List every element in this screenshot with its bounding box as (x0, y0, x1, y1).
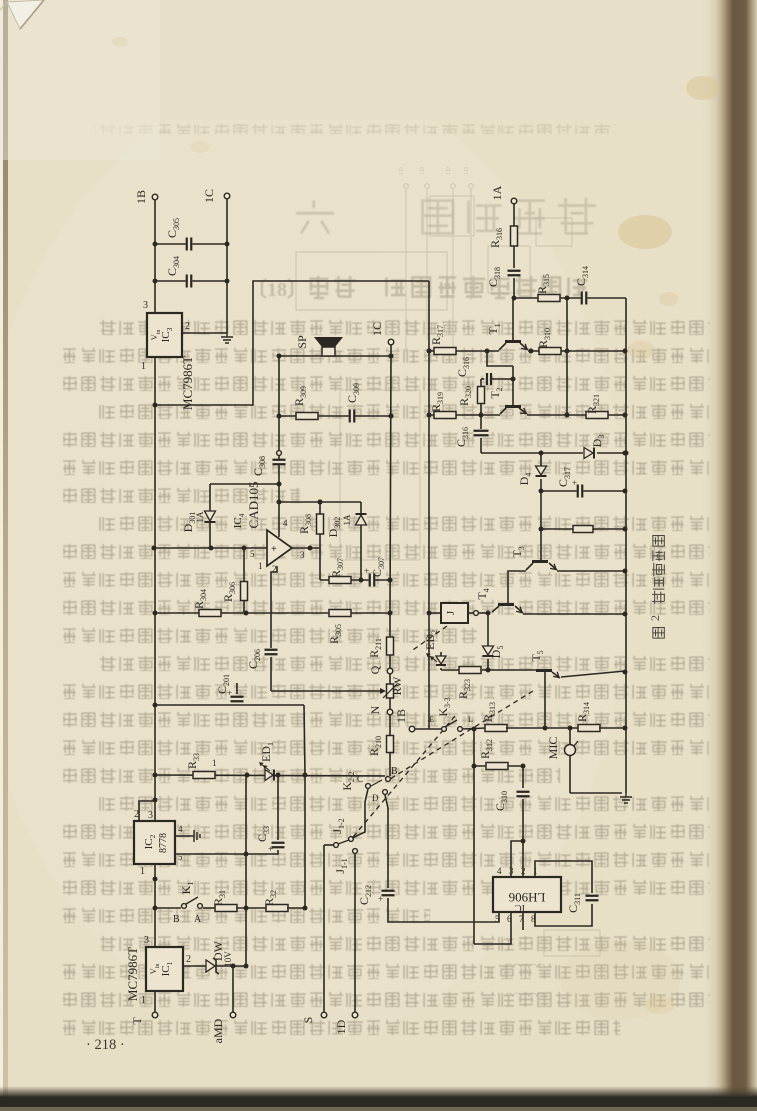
svg-text:aMD: aMD (211, 1018, 225, 1043)
svg-text:1A: 1A (490, 185, 504, 200)
svg-text:C: C (357, 774, 363, 784)
svg-text:1D: 1D (334, 1019, 348, 1034)
svg-text:1B: 1B (394, 709, 408, 723)
svg-text:J: J (445, 610, 457, 615)
svg-text:2: 2 (648, 615, 662, 621)
svg-text:4: 4 (283, 518, 288, 528)
svg-text:8778: 8778 (158, 833, 169, 853)
svg-text:2: 2 (521, 866, 526, 876)
svg-text:CAD105: CAD105 (246, 482, 261, 529)
svg-text:1D: 1D (463, 167, 470, 175)
svg-text:MC7986T: MC7986T (125, 947, 140, 1001)
svg-text:A: A (194, 914, 202, 925)
svg-text:+: + (378, 894, 383, 904)
svg-text:+: + (364, 566, 369, 576)
svg-text:4: 4 (497, 866, 502, 876)
svg-text:3: 3 (509, 866, 514, 876)
svg-text:+: + (271, 544, 277, 555)
svg-text:1: 1 (141, 361, 146, 372)
svg-text:2: 2 (186, 954, 191, 965)
svg-text:MIC: MIC (546, 737, 560, 760)
svg-text:MC7986T: MC7986T (180, 356, 195, 410)
svg-text:B: B (391, 766, 398, 777)
svg-text:B: B (173, 914, 180, 925)
svg-text:E: E (429, 715, 434, 724)
svg-text:5: 5 (495, 914, 500, 924)
svg-text:5: 5 (178, 852, 183, 862)
svg-text:1C: 1C (202, 189, 216, 203)
svg-text:4: 4 (178, 824, 183, 834)
svg-text:+: + (572, 478, 577, 488)
svg-text:1A: 1A (342, 514, 352, 526)
svg-text:SP: SP (295, 335, 309, 349)
svg-text:1C: 1C (370, 322, 384, 336)
svg-text:1B: 1B (134, 190, 148, 204)
svg-text:5: 5 (250, 549, 255, 559)
svg-text:3: 3 (300, 550, 305, 560)
svg-text:IC: IC (515, 902, 525, 913)
svg-text:1D: 1D (398, 167, 405, 175)
svg-text:+: + (268, 844, 273, 854)
svg-text:1: 1 (140, 866, 145, 877)
svg-text:1: 1 (258, 561, 263, 571)
svg-text:N: N (368, 705, 382, 714)
svg-text:1: 1 (212, 758, 217, 768)
svg-text:2: 2 (185, 321, 190, 332)
svg-text:LH906: LH906 (508, 890, 545, 905)
svg-text:6: 6 (507, 914, 512, 924)
svg-text:· 218 ·: · 218 · (86, 1037, 125, 1053)
svg-text:S: S (301, 1017, 315, 1024)
svg-text:1: 1 (141, 995, 146, 1006)
svg-text:2: 2 (134, 809, 139, 820)
svg-text:1D: 1D (419, 167, 426, 175)
svg-text:T: T (130, 1017, 144, 1025)
svg-text:RW: RW (390, 676, 404, 695)
svg-text:L: L (468, 715, 473, 724)
svg-text:1A: 1A (195, 511, 205, 523)
svg-text:D: D (372, 793, 379, 803)
svg-text:3: 3 (148, 810, 153, 821)
svg-text:3: 3 (144, 935, 149, 946)
svg-text:Q: Q (368, 665, 382, 674)
svg-text:1D: 1D (445, 167, 452, 175)
svg-text:3: 3 (143, 300, 148, 311)
